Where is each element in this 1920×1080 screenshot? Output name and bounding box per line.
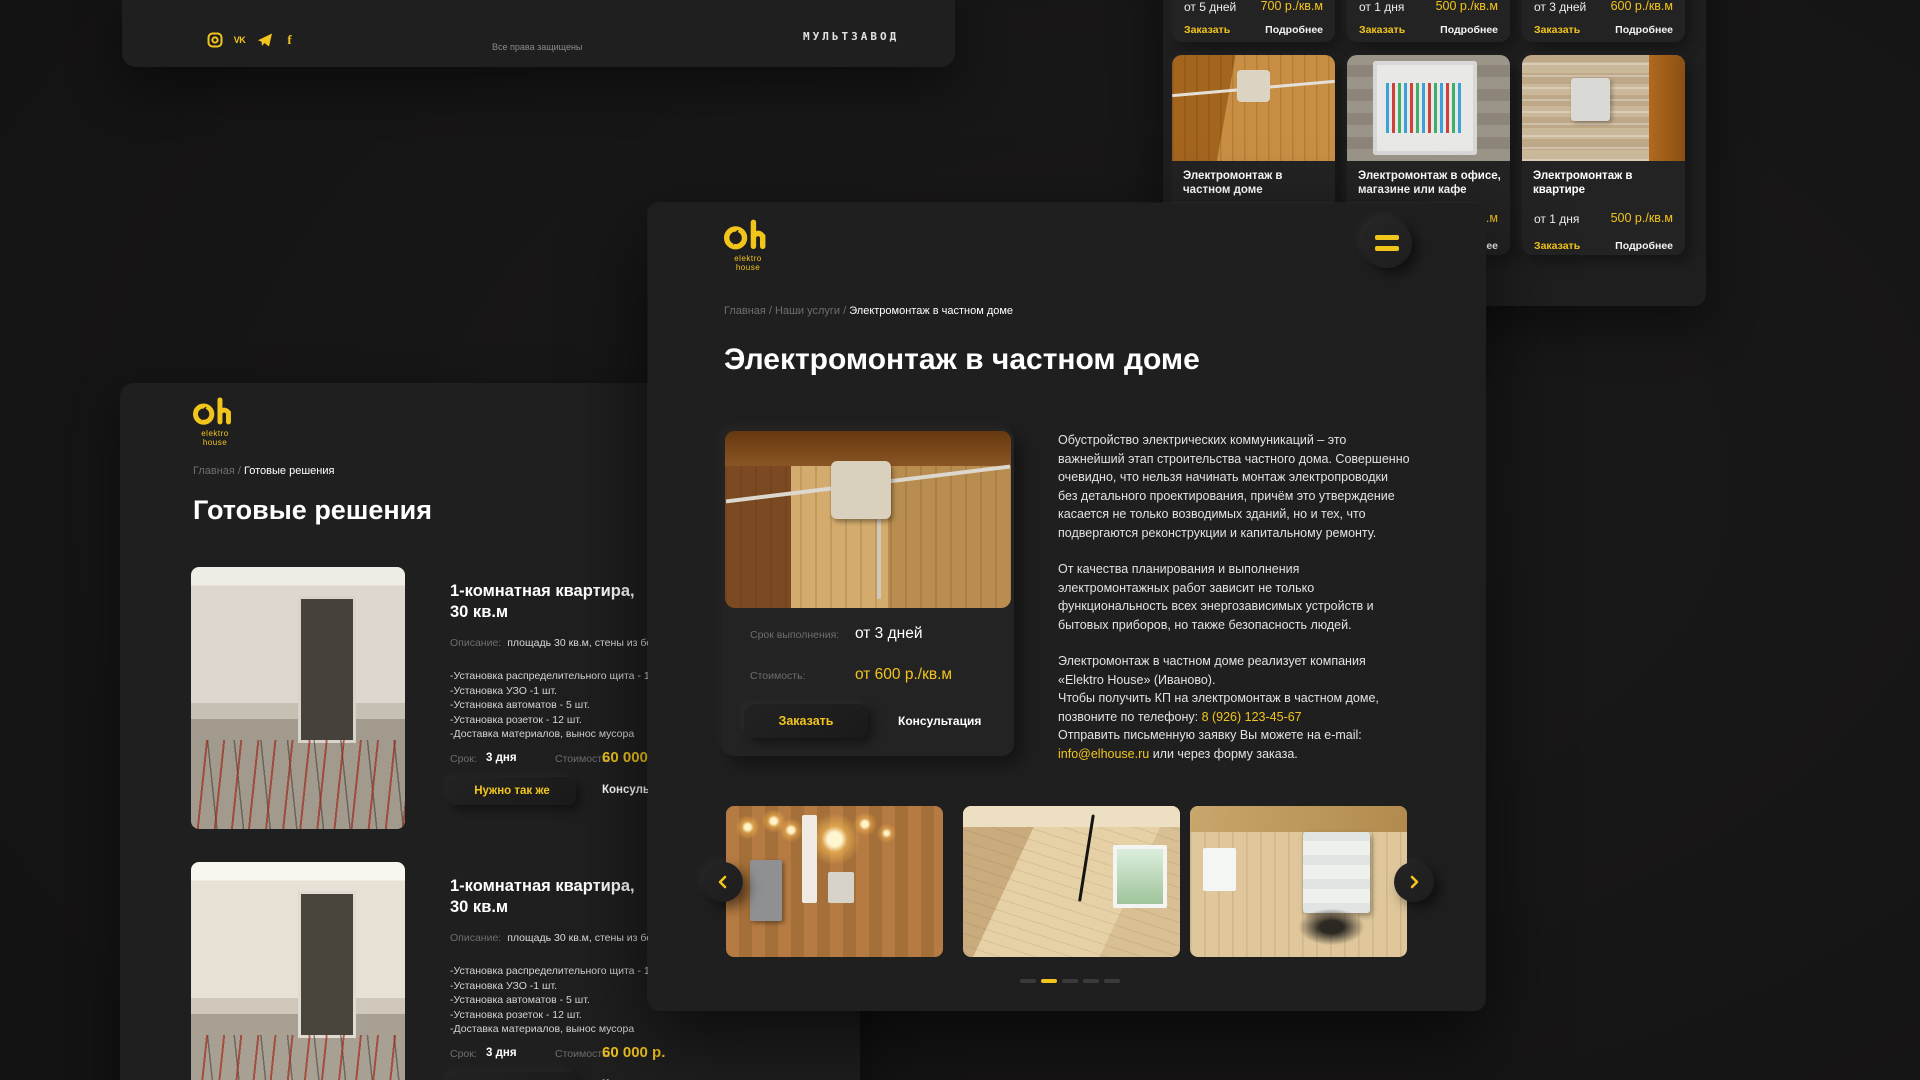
- contact-text: Отправить письменную заявку Вы можете на…: [1058, 728, 1362, 742]
- breadcrumb-current: Электромонтаж в частном доме: [849, 305, 1013, 317]
- breadcrumb-path[interactable]: Главная / Наши услуги /: [724, 305, 849, 317]
- menu-icon: [1375, 246, 1399, 251]
- chevron-right-icon: [1407, 875, 1421, 889]
- order-link[interactable]: Заказать: [1534, 24, 1580, 36]
- detail-page: elektro house Главная / Наши услуги / Эл…: [648, 203, 1486, 1011]
- solution-title: 1-комнатная квартира, 30 кв.м: [450, 876, 635, 918]
- service-price: 700 р./кв.м: [1261, 0, 1323, 13]
- gallery-dot[interactable]: [1083, 979, 1099, 983]
- gallery-dot[interactable]: [1020, 979, 1036, 983]
- solution-description: Описание:площадь 30 кв.м, стены из бетон…: [450, 637, 677, 649]
- instagram-icon[interactable]: [206, 31, 223, 48]
- service-duration: от 1 дня: [1359, 0, 1404, 14]
- breadcrumb-separator: /: [235, 465, 244, 477]
- term-label: Срок:: [450, 753, 477, 765]
- service-mini-card[interactable]: от 3 дней 600 р./кв.м Заказать Подробнее: [1522, 0, 1685, 42]
- service-mini-card[interactable]: от 1 дня 500 р./кв.м Заказать Подробнее: [1347, 0, 1510, 42]
- breadcrumb-home[interactable]: Главная: [193, 465, 235, 477]
- logo-subtitle: elektro house: [724, 254, 772, 272]
- logo-fragment: elektro house: [206, 0, 272, 3]
- service-photo: [1347, 55, 1510, 161]
- gallery-dot[interactable]: [1041, 979, 1057, 983]
- feature-item: -Установка УЗО -1 шт.: [450, 684, 665, 699]
- email-link[interactable]: info@elhouse.ru: [1058, 747, 1149, 761]
- service-price: 600 р./кв.м: [1611, 0, 1673, 13]
- paragraph: От качества планирования и выполнения эл…: [1058, 560, 1410, 634]
- studio-credit[interactable]: МУЛЬТЗАВОД: [803, 30, 899, 43]
- solution-title: 1-комнатная квартира, 30 кв.м: [450, 581, 635, 623]
- design-canvas: elektro house VK f Все права защищены МУ…: [0, 0, 1920, 1080]
- description-label: Описание:: [450, 637, 501, 649]
- service-title: Электромонтаж в квартире: [1533, 169, 1678, 197]
- vk-icon[interactable]: VK: [231, 31, 248, 48]
- product-photo: [725, 431, 1011, 608]
- page-title: Готовые решения: [193, 495, 432, 526]
- menu-icon: [1375, 235, 1399, 240]
- breadcrumb: Главная / Наши услуги / Электромонтаж в …: [724, 305, 1013, 317]
- order-link[interactable]: Заказать: [1359, 24, 1405, 36]
- more-link[interactable]: Подробнее: [1440, 24, 1498, 36]
- term-label: Срок выполнения:: [750, 629, 839, 641]
- page-title: Электромонтаж в частном доме: [724, 343, 1200, 377]
- gallery-pagination: [1020, 979, 1120, 983]
- service-duration: от 5 дней: [1184, 0, 1236, 14]
- term-value: от 3 дней: [855, 625, 923, 643]
- facebook-icon[interactable]: f: [281, 31, 298, 48]
- feature-item: -Установка розеток - 12 шт.: [450, 713, 665, 728]
- gallery-next-button[interactable]: [1394, 862, 1434, 902]
- solution-features: -Установка распределительного щита - 1шт…: [450, 669, 665, 742]
- gallery-image[interactable]: [726, 806, 943, 957]
- service-price: 500 р./кв.м: [1436, 0, 1498, 13]
- logo-fragment-text: elektro house: [206, 0, 272, 1]
- feature-item: -Установка распределительного щита - 1шт…: [450, 964, 665, 979]
- phone-link[interactable]: 8 (926) 123-45-67: [1202, 710, 1302, 724]
- breadcrumb-current: Готовые решения: [244, 465, 334, 477]
- chevron-left-icon: [716, 875, 730, 889]
- more-link[interactable]: Подробнее: [1615, 24, 1673, 36]
- solution-meta: Срок: 3 дня Стоимость: 60 000 р.: [450, 1044, 780, 1064]
- need-same-button[interactable]: Нужно так же: [448, 777, 576, 805]
- price-value: от 600 р./кв.м: [855, 666, 952, 684]
- consultation-link[interactable]: Консультация: [898, 714, 981, 728]
- service-mini-card[interactable]: от 5 дней 700 р./кв.м Заказать Подробнее: [1172, 0, 1335, 42]
- site-logo[interactable]: elektro house: [724, 219, 772, 272]
- service-price: 500 р./кв.м: [1611, 211, 1673, 225]
- paragraph: Обустройство электрических коммуникаций …: [1058, 431, 1410, 542]
- product-card: Срок выполнения: от 3 дней Стоимость: от…: [722, 428, 1014, 756]
- feature-item: -Установка распределительного щита - 1шт…: [450, 669, 665, 684]
- social-links: VK f: [206, 31, 298, 48]
- telegram-icon[interactable]: [256, 31, 273, 48]
- gallery-image[interactable]: [963, 806, 1180, 957]
- service-photo: [1522, 55, 1685, 161]
- gallery-image[interactable]: [1190, 806, 1407, 957]
- feature-item: -Установка розеток - 12 шт.: [450, 1008, 665, 1023]
- description-label: Описание:: [450, 932, 501, 944]
- footer-strip: elektro house VK f Все права защищены МУ…: [122, 0, 955, 67]
- logo-subtitle: elektro house: [193, 429, 237, 447]
- order-button[interactable]: Заказать: [744, 704, 868, 738]
- more-link[interactable]: Подробнее: [1615, 240, 1673, 252]
- gallery-prev-button[interactable]: [703, 862, 743, 902]
- gallery-dot[interactable]: [1062, 979, 1078, 983]
- feature-item: -Доставка материалов, вынос мусора: [450, 1022, 665, 1037]
- service-duration: от 3 дней: [1534, 0, 1586, 14]
- breadcrumb: Главная / Готовые решения: [193, 465, 334, 477]
- copyright-text: Все права защищены: [492, 42, 582, 52]
- service-title: Электромонтаж в частном доме: [1183, 169, 1328, 197]
- feature-item: -Установка автоматов - 5 шт.: [450, 698, 665, 713]
- solution-description: Описание:площадь 30 кв.м, стены из бетон…: [450, 932, 677, 944]
- site-logo[interactable]: elektro house: [193, 397, 237, 447]
- service-photo: [1172, 55, 1335, 161]
- gallery-dot[interactable]: [1104, 979, 1120, 983]
- contact-paragraph: Электромонтаж в частном доме реализует к…: [1058, 652, 1410, 763]
- order-link[interactable]: Заказать: [1534, 240, 1580, 252]
- price-label: Стоимость:: [750, 670, 805, 682]
- service-title: Электромонтаж в офисе, магазине или кафе: [1358, 169, 1503, 197]
- service-description: Обустройство электрических коммуникаций …: [1058, 431, 1410, 781]
- contact-text: или через форму заказа.: [1149, 747, 1298, 761]
- menu-button[interactable]: [1362, 218, 1412, 268]
- feature-item: -Установка УЗО -1 шт.: [450, 979, 665, 994]
- more-link[interactable]: Подробнее: [1265, 24, 1323, 36]
- solution-photo: [191, 862, 405, 1080]
- need-same-button[interactable]: Нужно так же: [448, 1072, 576, 1080]
- solution-features: -Установка распределительного щита - 1шт…: [450, 964, 665, 1037]
- order-link[interactable]: Заказать: [1184, 24, 1230, 36]
- term-value: 3 дня: [486, 752, 517, 764]
- feature-item: -Доставка материалов, вынос мусора: [450, 727, 665, 742]
- price-value: 60 000 р.: [602, 1044, 665, 1061]
- solution-photo: [191, 567, 405, 829]
- service-duration: от 1 дня: [1534, 212, 1579, 226]
- term-value: 3 дня: [486, 1047, 517, 1059]
- term-label: Срок:: [450, 1048, 477, 1060]
- feature-item: -Установка автоматов - 5 шт.: [450, 993, 665, 1008]
- service-card-apartment[interactable]: Электромонтаж в квартире от 1 дня 500 р.…: [1522, 55, 1685, 255]
